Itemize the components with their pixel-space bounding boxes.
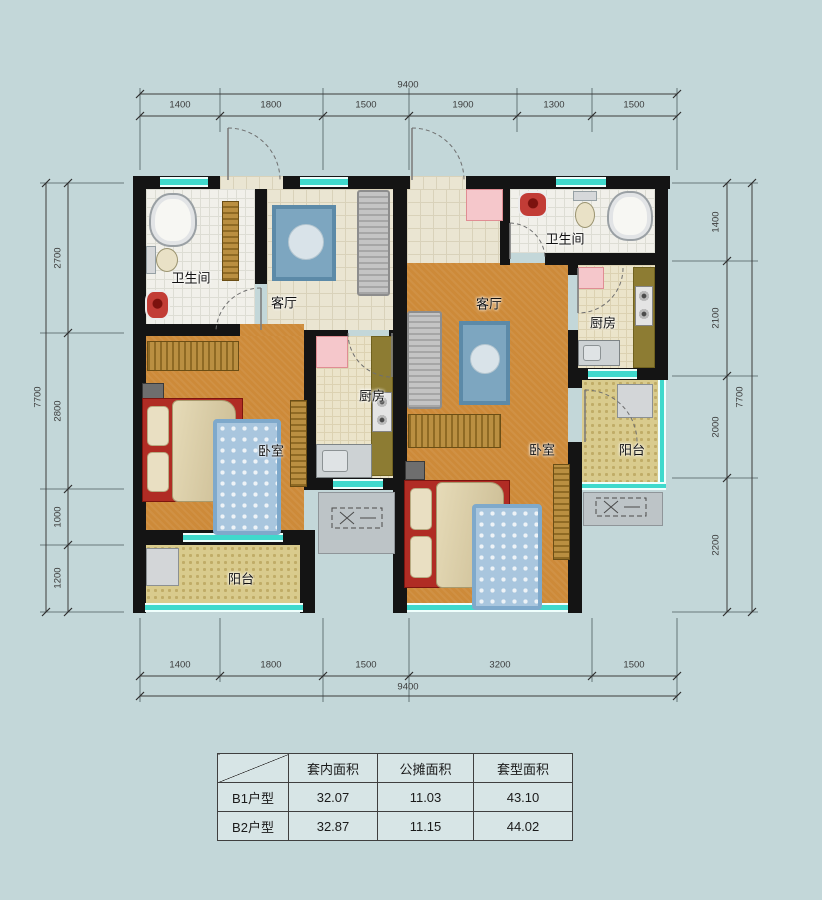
dim-left-seg-3: 1200 — [53, 567, 64, 588]
table-cell: 11.15 — [378, 812, 474, 841]
wall-b2-bedroom-right — [568, 442, 582, 613]
dim-top-seg-3: 1900 — [452, 100, 473, 111]
dim-bottom-overall: 9400 — [397, 682, 418, 693]
b1-bedroom-rug — [213, 419, 281, 535]
window-b1-balcony-bottom — [145, 603, 303, 612]
b1-hall-opening — [240, 324, 304, 336]
b2-sofa — [407, 311, 442, 409]
room-label-b2-bathroom: 卫生间 — [545, 229, 584, 248]
area-table: 套内面积 公摊面积 套型面积 B1户型 32.07 11.03 43.10 B2… — [217, 753, 573, 841]
room-label-b2-bedroom: 卧室 — [529, 440, 555, 459]
table-cell: 32.07 — [289, 783, 378, 812]
table-header-row: 套内面积 公摊面积 套型面积 — [218, 754, 573, 783]
b1-sofa — [357, 190, 390, 296]
floor-plan: 卫生间 客厅 厨房 卧室 阳台 卫生间 客厅 厨房 卧室 阳台 — [0, 0, 822, 720]
dim-top-seg-4: 1300 — [543, 100, 564, 111]
b1-tv-cabinet — [222, 201, 239, 281]
window-b2-balcony-bottom — [582, 482, 666, 490]
table-cell: 11.03 — [378, 783, 474, 812]
dim-top-seg-2: 1500 — [355, 100, 376, 111]
b2-entry-closet — [466, 189, 503, 221]
b1-burner-2 — [377, 415, 387, 425]
wall-b2-kitchen-left-stub — [568, 265, 578, 275]
table-cell: 32.87 — [289, 812, 378, 841]
dim-right-seg-1: 2100 — [711, 307, 722, 328]
window-top-3 — [556, 177, 606, 187]
b2-nightstand-top — [405, 461, 425, 480]
b2-bathtub — [607, 191, 653, 241]
window-b2-balcony-right — [658, 380, 666, 488]
b1-balcony-washer — [146, 548, 179, 586]
table-header-inner-area: 套内面积 — [289, 754, 378, 783]
b1-bathtub — [149, 193, 197, 247]
b1-rug-circle — [288, 224, 324, 260]
b2-burner-1 — [639, 291, 649, 301]
dim-top-seg-5: 1500 — [623, 100, 644, 111]
b1-wardrobe — [147, 341, 239, 371]
wall-b1-balcony-post-left — [133, 600, 145, 613]
b2-kitchen-cabinet — [578, 267, 604, 289]
dim-bottom-seg-2: 1500 — [355, 660, 376, 671]
wall-b1-bathroom-bottom — [133, 324, 240, 336]
b1-bedroom-cabinet — [290, 400, 307, 487]
b1-kitchen-cabinet — [316, 336, 348, 368]
table-cell: 43.10 — [474, 783, 573, 812]
b2-balcony-washer — [617, 384, 653, 418]
room-label-b2-living: 客厅 — [476, 294, 502, 313]
table-row-label: B2户型 — [218, 812, 289, 841]
table-cell: 44.02 — [474, 812, 573, 841]
b1-kitchen-basin — [322, 450, 348, 472]
b1-sink — [145, 290, 170, 320]
window-b1-kitchen — [333, 479, 383, 489]
b2-burner-2 — [639, 309, 649, 319]
room-label-b1-kitchen: 厨房 — [359, 386, 385, 405]
b2-pillow-1 — [410, 488, 432, 530]
window-b2-kitchen — [588, 369, 637, 379]
dim-right-seg-3: 2200 — [711, 534, 722, 555]
wall-b2-bathroom-bottom — [545, 253, 668, 265]
room-label-b1-living: 客厅 — [271, 293, 297, 312]
b2-sink — [518, 191, 548, 218]
table-header-unit-area: 套型面积 — [474, 754, 573, 783]
dim-bottom-seg-4: 1500 — [623, 660, 644, 671]
entry-door-gap-b1 — [220, 176, 283, 189]
entry-door-gap-b2 — [410, 176, 466, 189]
room-label-b1-bedroom: 卧室 — [258, 441, 284, 460]
dim-bottom-seg-3: 3200 — [489, 660, 510, 671]
b2-rug-circle — [470, 344, 500, 374]
b1-ac-platform — [318, 492, 395, 554]
room-label-b1-bathroom: 卫生间 — [171, 268, 210, 287]
b2-toilet-bowl — [575, 202, 595, 228]
table-row: B2户型 32.87 11.15 44.02 — [218, 812, 573, 841]
dim-left-seg-2: 1000 — [53, 506, 64, 527]
table-corner-cell — [218, 754, 289, 783]
window-top-2 — [300, 177, 348, 187]
wall-b1-bathroom-right — [255, 189, 267, 284]
window-top-1 — [160, 177, 208, 187]
room-label-b2-kitchen: 厨房 — [590, 313, 616, 332]
b2-kitchen-basin — [583, 345, 601, 361]
dim-top-overall: 9400 — [397, 80, 418, 91]
dim-bottom-seg-1: 1800 — [260, 660, 281, 671]
dim-right-seg-2: 2000 — [711, 416, 722, 437]
dim-right-seg-0: 1400 — [711, 211, 722, 232]
b2-ac-platform — [583, 492, 663, 526]
dim-bottom-seg-0: 1400 — [169, 660, 190, 671]
b2-toilet-tank — [573, 191, 597, 201]
dim-top-seg-1: 1800 — [260, 100, 281, 111]
b1-pillow-1 — [147, 406, 169, 446]
b1-pillow-2 — [147, 452, 169, 492]
dim-left-seg-1: 2800 — [53, 400, 64, 421]
wall-b1-balcony-post-right — [303, 600, 315, 613]
b1-toilet-tank — [146, 246, 156, 274]
wall-right-outer — [655, 176, 668, 380]
b2-wardrobe — [408, 414, 501, 448]
b2-pillow-2 — [410, 536, 432, 578]
wall-b2-bedroom-right-top — [568, 380, 582, 388]
table-row-label: B1户型 — [218, 783, 289, 812]
dim-left-seg-0: 2700 — [53, 247, 64, 268]
table-header-shared-area: 公摊面积 — [378, 754, 474, 783]
b2-bedroom-rug — [472, 504, 542, 610]
room-label-b2-balcony: 阳台 — [619, 440, 645, 459]
floor-plan-page: { "plan": { "units": { "b1": { "rooms": … — [0, 0, 822, 900]
room-label-b1-balcony: 阳台 — [228, 569, 254, 588]
dim-right-overall: 7700 — [735, 386, 746, 407]
dim-top-seg-0: 1400 — [169, 100, 190, 111]
dim-left-overall: 7700 — [33, 386, 44, 407]
table-row: B1户型 32.07 11.03 43.10 — [218, 783, 573, 812]
b2-bedroom-cabinet — [553, 464, 570, 560]
